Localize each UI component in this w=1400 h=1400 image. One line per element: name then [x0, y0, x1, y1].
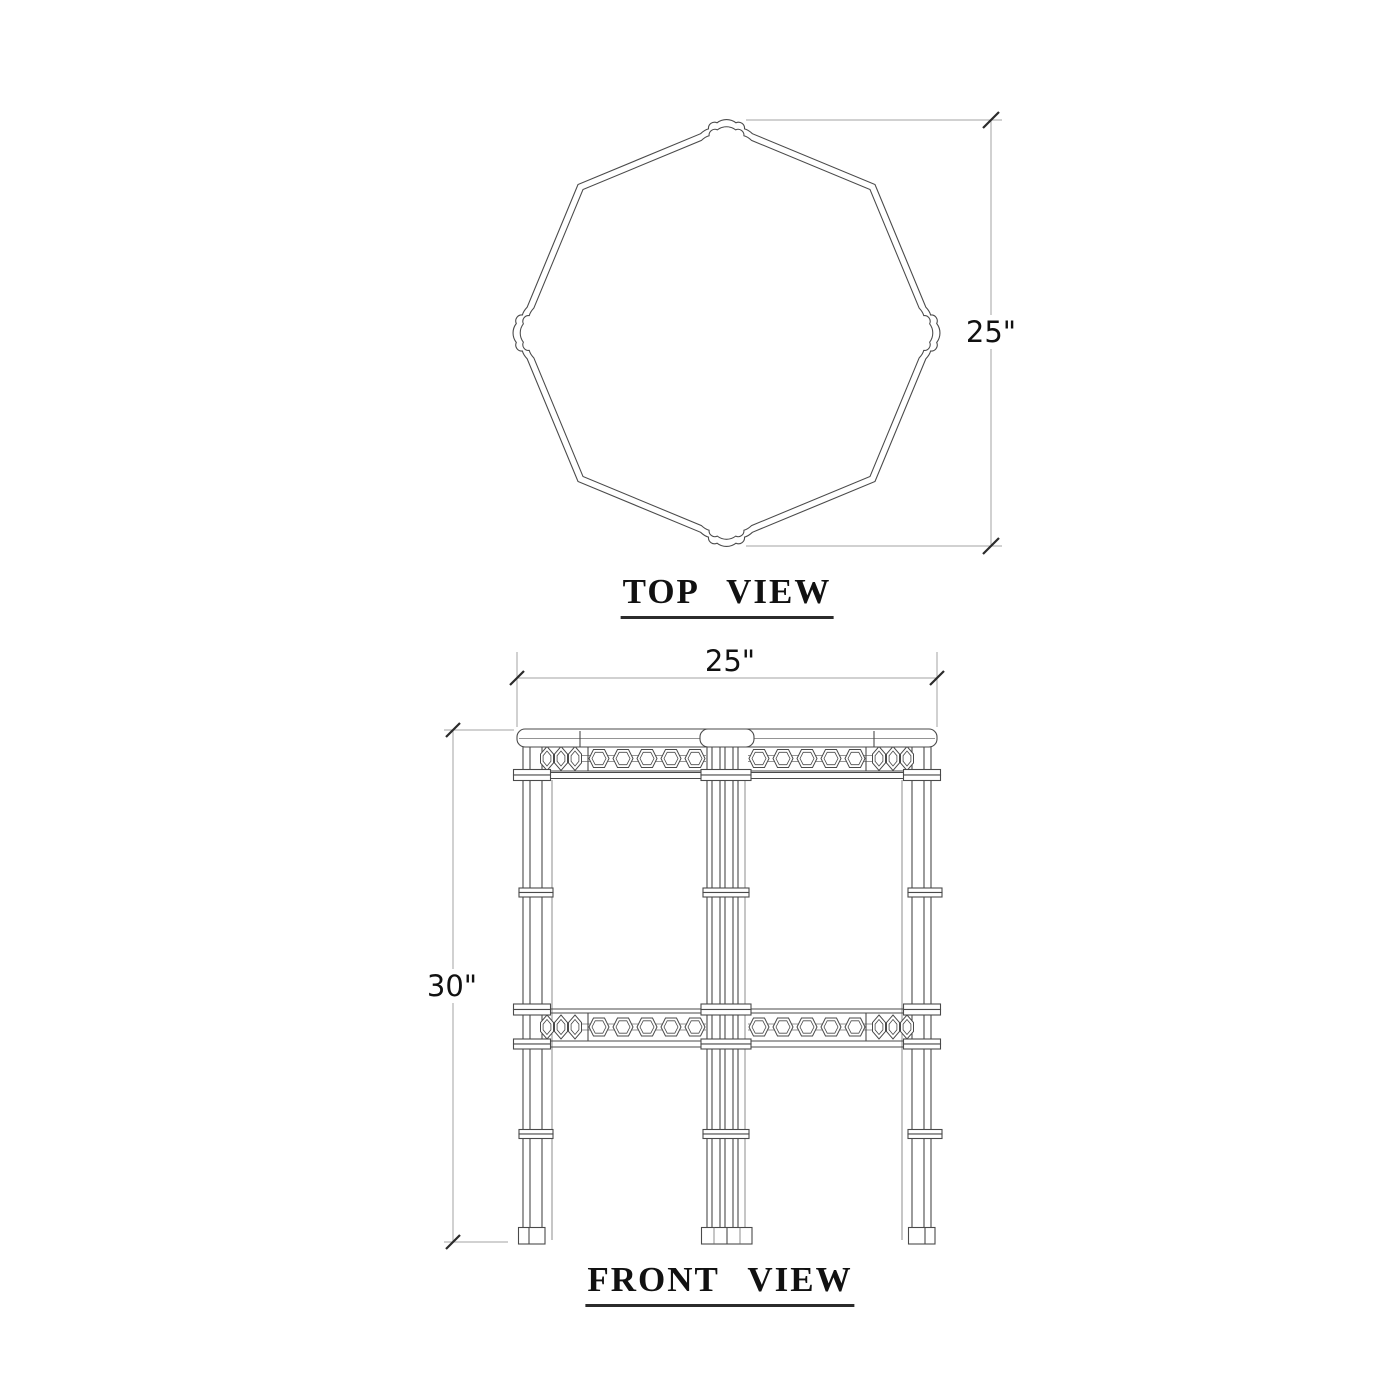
left-leg [523, 747, 552, 1240]
tabletop-center-cusp-bump [700, 729, 754, 747]
tabletop-octagon-outline [513, 120, 940, 547]
shelf-fretwork-band [514, 1004, 941, 1049]
center-leg-cluster [707, 747, 745, 1240]
drawing-sheet [0, 0, 1400, 1400]
bamboo-ring-collars-lower [519, 1130, 942, 1139]
apron-fretwork-band [541, 747, 914, 772]
top-view-drawing [513, 112, 1002, 554]
top-view-title: TOP VIEW [621, 572, 834, 619]
front-view-drawing [444, 652, 944, 1249]
front-view-title: FRONT VIEW [585, 1260, 854, 1307]
tabletop-slab [517, 729, 937, 747]
right-leg [902, 747, 931, 1240]
front-view-height-dim-label: 30" [422, 969, 482, 1003]
top-view-height-dim-label: 25" [961, 315, 1021, 349]
feet [519, 1228, 936, 1245]
front-view-width-dim-label: 25" [705, 644, 755, 678]
bamboo-ring-collars-upper [519, 888, 942, 897]
drawing-canvas: 25" TOP VIEW 25" 30" FRONT VIEW [0, 0, 1400, 1400]
